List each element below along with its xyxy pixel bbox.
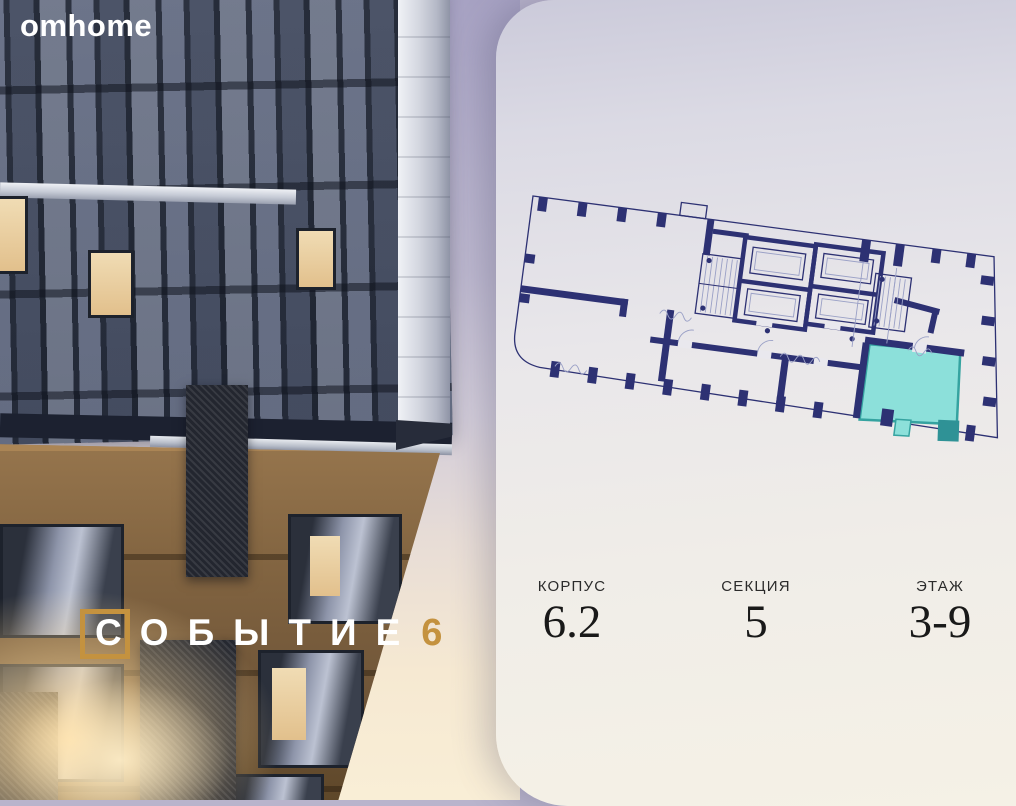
stat-korpus-value: 6.2 xyxy=(512,598,632,647)
upper-facade xyxy=(0,0,453,445)
stat-korpus: КОРПУС 6.2 xyxy=(512,578,632,647)
brand-logo: omhome xyxy=(20,8,152,44)
mesh-panel xyxy=(140,640,236,800)
stat-etazh-value: 3-9 xyxy=(880,598,1000,647)
floor-plan xyxy=(500,170,1016,470)
highlighted-unit[interactable] xyxy=(858,340,970,443)
lit-window xyxy=(0,196,28,274)
page: СОБЫТИЕ6 omhome xyxy=(0,0,1016,800)
mesh-panel xyxy=(186,385,248,577)
corner-column xyxy=(398,0,450,424)
stat-etazh-label: ЭТАЖ xyxy=(880,578,1000,595)
stat-sektsiya: СЕКЦИЯ 5 xyxy=(696,578,816,647)
stat-sektsiya-label: СЕКЦИЯ xyxy=(696,578,816,595)
building-photo: СОБЫТИЕ6 omhome xyxy=(0,0,520,800)
mesh-panel xyxy=(0,692,58,800)
project-number: 6 xyxy=(421,612,442,654)
project-name: СОБЫТИЕ xyxy=(95,612,419,653)
unit-stats: КОРПУС 6.2 СЕКЦИЯ 5 ЭТАЖ 3-9 xyxy=(496,578,1016,647)
stat-etazh: ЭТАЖ 3-9 xyxy=(880,578,1000,647)
lit-window xyxy=(88,250,134,318)
lit-window xyxy=(296,228,336,290)
stat-korpus-label: КОРПУС xyxy=(512,578,632,595)
stat-sektsiya-value: 5 xyxy=(696,598,816,647)
project-title: СОБЫТИЕ6 xyxy=(95,612,442,655)
